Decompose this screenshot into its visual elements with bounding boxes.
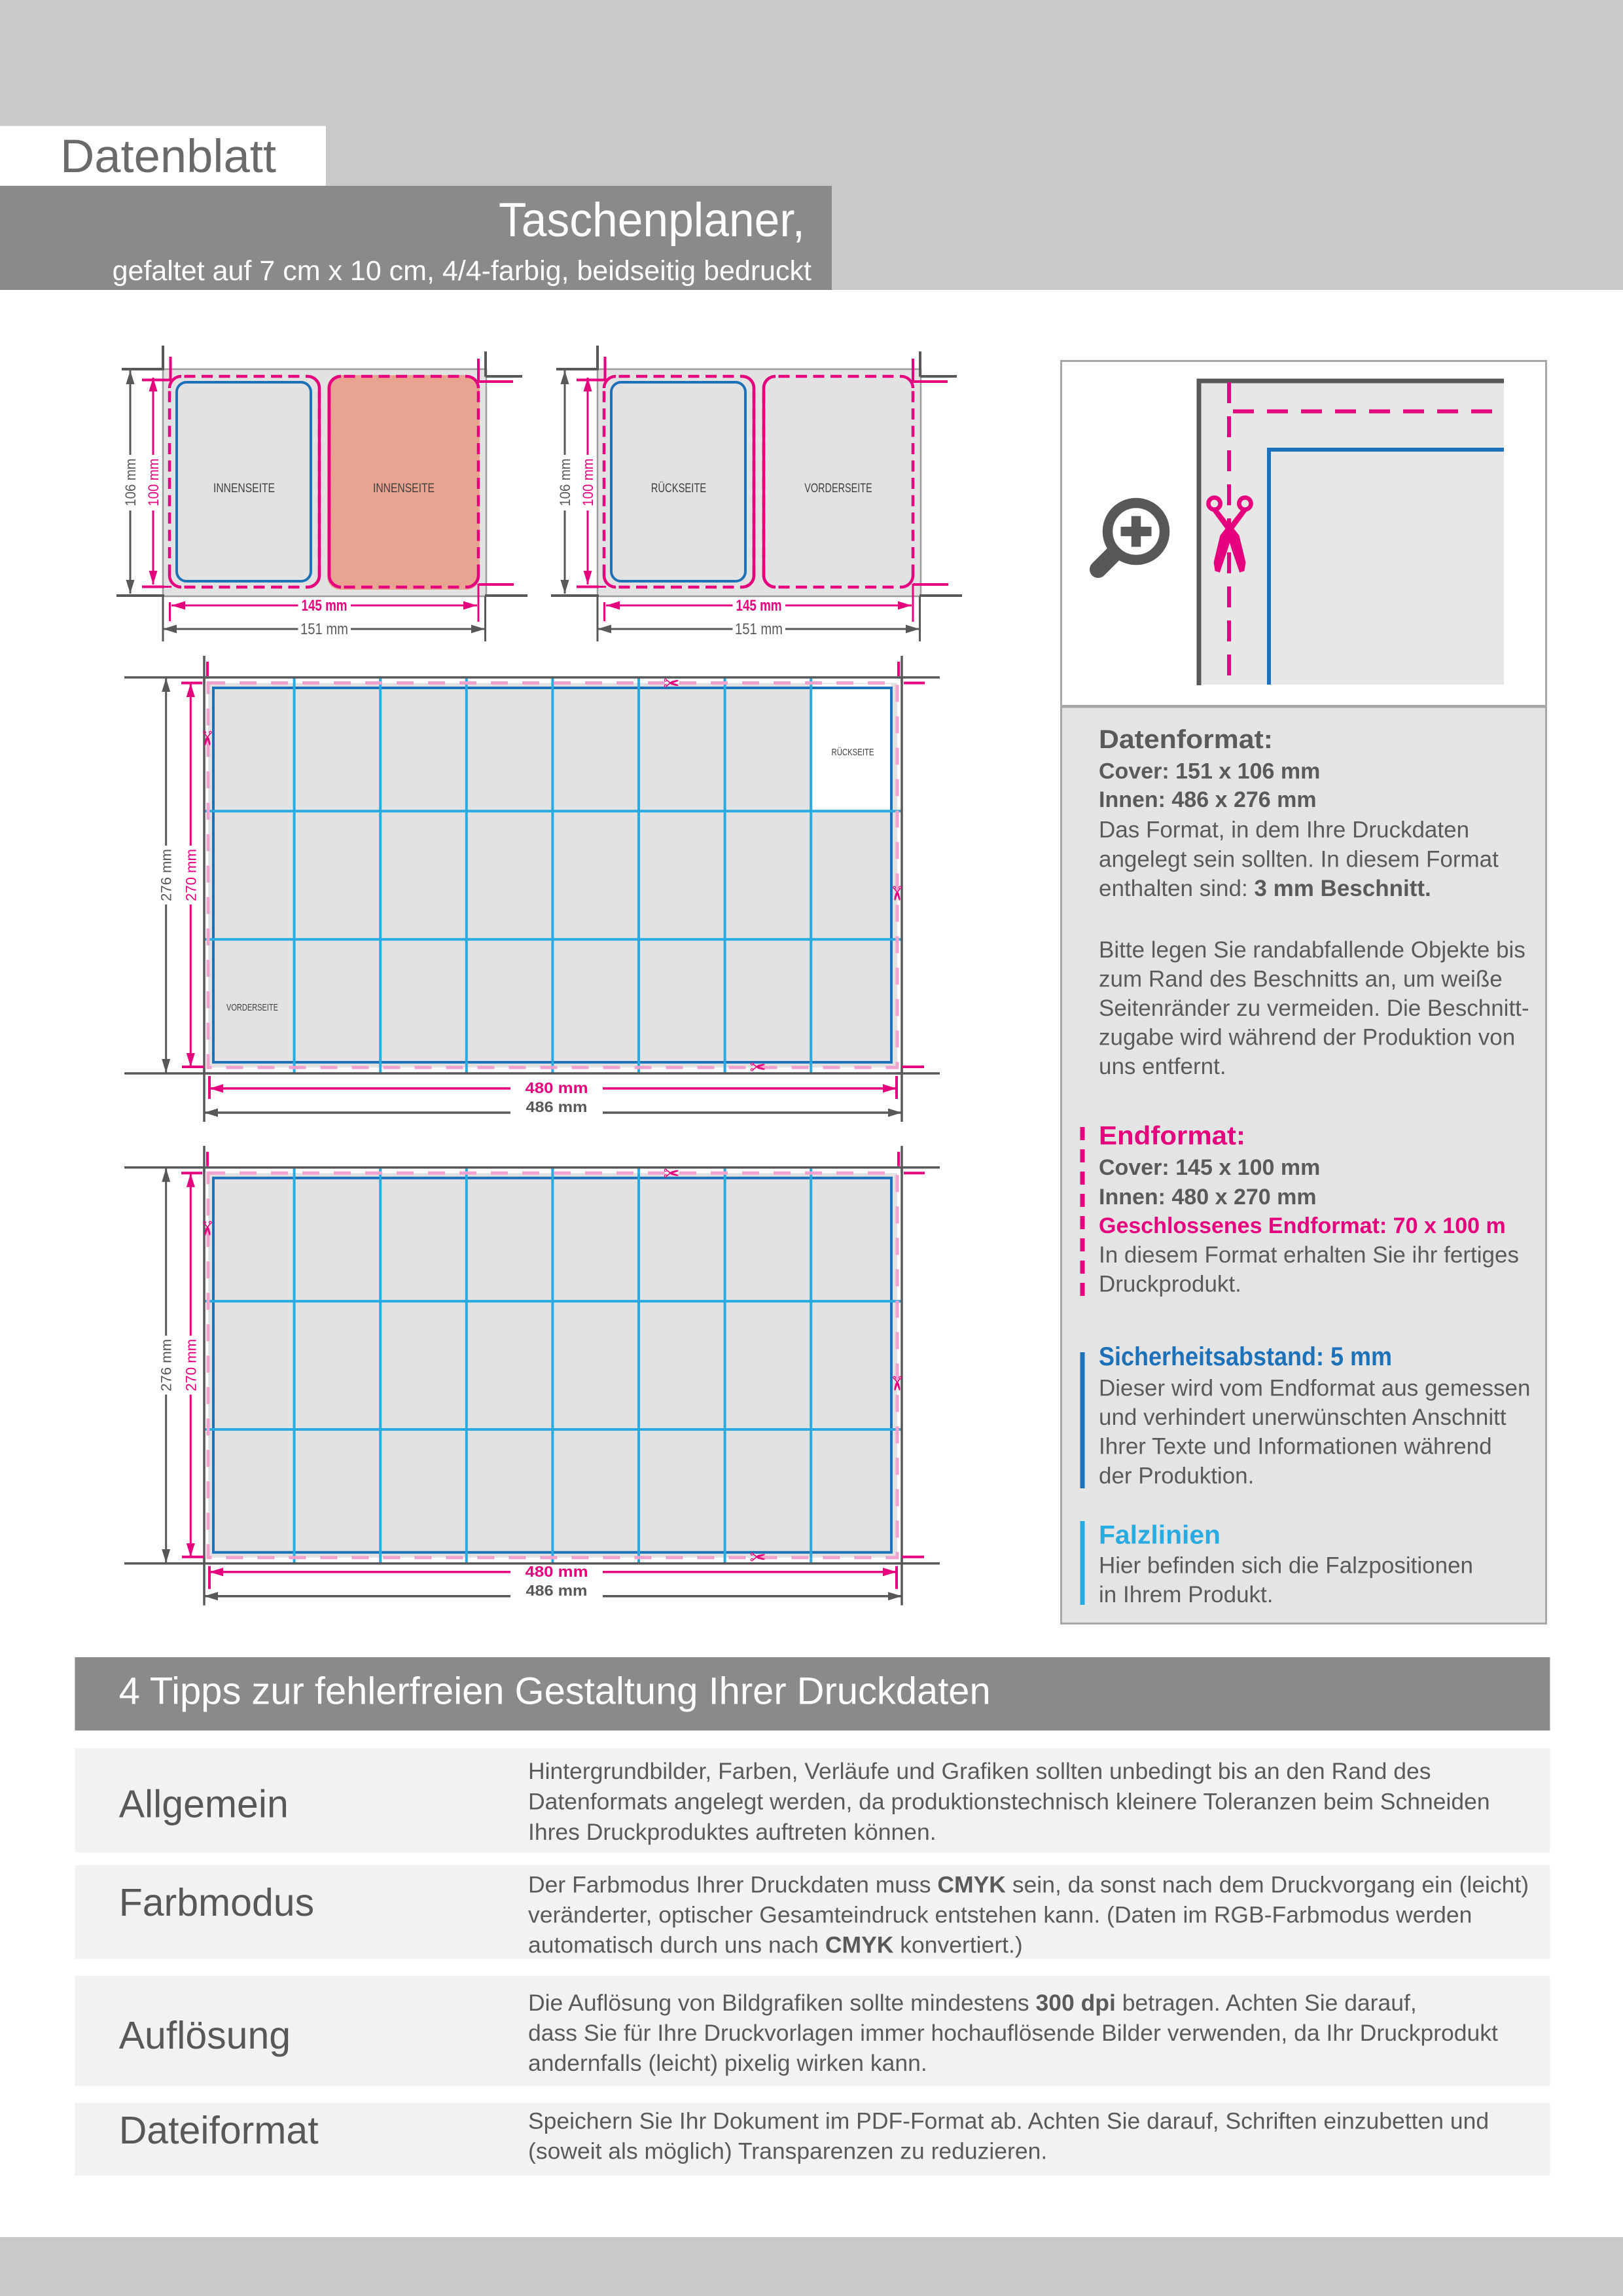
svg-text:Speichern Sie Ihr Dokument im: Speichern Sie Ihr Dokument im PDF-Format… <box>528 2108 1489 2134</box>
svg-text:andernfalls (leicht) pixelig w: andernfalls (leicht) pixelig wirken kann… <box>528 2050 927 2076</box>
svg-text:Datenformats angelegt werden,: Datenformats angelegt werden, da produkt… <box>528 1788 1490 1814</box>
svg-text:angelegt sein sollten. In dies: angelegt sein sollten. In diesem Format <box>1099 846 1499 872</box>
svg-text:276 mm: 276 mm <box>158 849 175 901</box>
svg-text:Farbmodus: Farbmodus <box>119 1881 314 1924</box>
svg-text:RÜCKSEITE: RÜCKSEITE <box>651 482 707 495</box>
svg-text:100 mm: 100 mm <box>145 459 162 507</box>
svg-text:Auflösung: Auflösung <box>119 2014 291 2057</box>
svg-text:270 mm: 270 mm <box>183 1339 199 1391</box>
svg-text:Sicherheitsabstand: 5 mm: Sicherheitsabstand: 5 mm <box>1099 1342 1392 1371</box>
svg-text:Innen: 486 x 276 mm: Innen: 486 x 276 mm <box>1099 787 1317 812</box>
svg-text:veränderter, optischer Gesamte: veränderter, optischer Gesamteindruck en… <box>528 1902 1472 1928</box>
svg-text:INNENSEITE: INNENSEITE <box>373 482 435 495</box>
svg-text:gefaltet auf 7 cm x 10 cm, 4/4: gefaltet auf 7 cm x 10 cm, 4/4-farbig, b… <box>113 255 811 287</box>
svg-text:uns entfernt.: uns entfernt. <box>1099 1054 1226 1079</box>
svg-text:Ihres Druckproduktes auftreten: Ihres Druckproduktes auftreten können. <box>528 1819 936 1845</box>
svg-text:Das Format, in dem Ihre Druckd: Das Format, in dem Ihre Druckdaten <box>1099 817 1469 843</box>
svg-text:und verhindert unerwünschten A: und verhindert unerwünschten Anschnitt <box>1099 1405 1507 1430</box>
svg-text:145 mm: 145 mm <box>736 597 782 615</box>
svg-text:Der Farbmodus Ihrer Druckdaten: Der Farbmodus Ihrer Druckdaten muss CMYK… <box>528 1872 1529 1898</box>
svg-text:151 mm: 151 mm <box>300 620 348 638</box>
svg-text:Cover: 151 x 106 mm: Cover: 151 x 106 mm <box>1099 759 1320 784</box>
svg-text:automatisch durch uns nach CMY: automatisch durch uns nach CMYK konverti… <box>528 1931 1023 1958</box>
svg-text:Innen: 480 x 270 mm: Innen: 480 x 270 mm <box>1099 1185 1317 1210</box>
svg-text:Dateiformat: Dateiformat <box>119 2109 319 2152</box>
svg-text:VORDERSEITE: VORDERSEITE <box>226 1002 278 1013</box>
svg-text:Druckprodukt.: Druckprodukt. <box>1099 1272 1241 1297</box>
svg-text:Endformat:: Endformat: <box>1099 1122 1245 1151</box>
svg-text:Geschlossenes Endformat: 70 x: Geschlossenes Endformat: 70 x 100 m <box>1099 1213 1506 1238</box>
svg-text:zugabe wird während der Produk: zugabe wird während der Produktion von <box>1099 1025 1515 1050</box>
svg-text:276 mm: 276 mm <box>158 1339 175 1391</box>
svg-text:INNENSEITE: INNENSEITE <box>213 482 275 495</box>
svg-text:VORDERSEITE: VORDERSEITE <box>804 482 872 495</box>
svg-text:100 mm: 100 mm <box>580 459 596 507</box>
svg-text:486 mm: 486 mm <box>526 1582 588 1599</box>
svg-text:Taschenplaner,: Taschenplaner, <box>499 194 805 247</box>
svg-text:145 mm: 145 mm <box>302 597 348 615</box>
svg-text:Allgemein: Allgemein <box>119 1782 289 1825</box>
svg-text:Die Auflösung von Bildgrafiken: Die Auflösung von Bildgrafiken sollte mi… <box>528 1990 1417 2016</box>
svg-text:in Ihrem Produkt.: in Ihrem Produkt. <box>1099 1582 1274 1607</box>
svg-text:Cover: 145 x 100 mm: Cover: 145 x 100 mm <box>1099 1155 1320 1180</box>
svg-text:Datenblatt: Datenblatt <box>60 131 276 183</box>
svg-text:dass Sie für Ihre Druckvorlage: dass Sie für Ihre Druckvorlagen immer ho… <box>528 2020 1498 2046</box>
svg-text:In diesem Format erhalten Sie: In diesem Format erhalten Sie ihr fertig… <box>1099 1242 1519 1268</box>
svg-text:486 mm: 486 mm <box>526 1098 588 1115</box>
svg-text:Dieser wird vom Endformat aus: Dieser wird vom Endformat aus gemessen <box>1099 1376 1530 1401</box>
svg-text:Seitenränder zu vermeiden. Die: Seitenränder zu vermeiden. Die Beschnitt… <box>1099 996 1529 1021</box>
svg-text:Hintergrundbilder, Farben, Ver: Hintergrundbilder, Farben, Verläufe und … <box>528 1758 1431 1784</box>
svg-text:(soweit als möglich) Transpare: (soweit als möglich) Transparenzen zu re… <box>528 2138 1047 2164</box>
svg-text:151 mm: 151 mm <box>735 620 783 638</box>
svg-text:106 mm: 106 mm <box>122 459 139 507</box>
svg-text:der Produktion.: der Produktion. <box>1099 1463 1254 1489</box>
svg-text:enthalten sind: 3 mm Beschnitt: enthalten sind: 3 mm Beschnitt. <box>1099 876 1431 901</box>
svg-text:RÜCKSEITE: RÜCKSEITE <box>832 746 874 758</box>
svg-text:zum Rand des Beschnitts an, um: zum Rand des Beschnitts an, um weiße <box>1099 967 1503 992</box>
svg-text:270 mm: 270 mm <box>183 849 199 901</box>
svg-text:Datenformat:: Datenformat: <box>1099 725 1273 754</box>
svg-text:4 Tipps zur fehlerfreien Gesta: 4 Tipps zur fehlerfreien Gestaltung Ihre… <box>119 1670 991 1713</box>
svg-text:Ihrer Texte und Informationen: Ihrer Texte und Informationen während <box>1099 1434 1492 1460</box>
svg-text:Bitte legen Sie randabfallende: Bitte legen Sie randabfallende Objekte b… <box>1099 937 1525 963</box>
svg-text:Hier befinden sich die Falzpos: Hier befinden sich die Falzpositionen <box>1099 1553 1473 1579</box>
svg-text:106 mm: 106 mm <box>557 459 573 507</box>
svg-text:480 mm: 480 mm <box>526 1079 588 1096</box>
svg-text:480 mm: 480 mm <box>526 1563 588 1580</box>
svg-text:Falzlinien: Falzlinien <box>1099 1521 1221 1550</box>
